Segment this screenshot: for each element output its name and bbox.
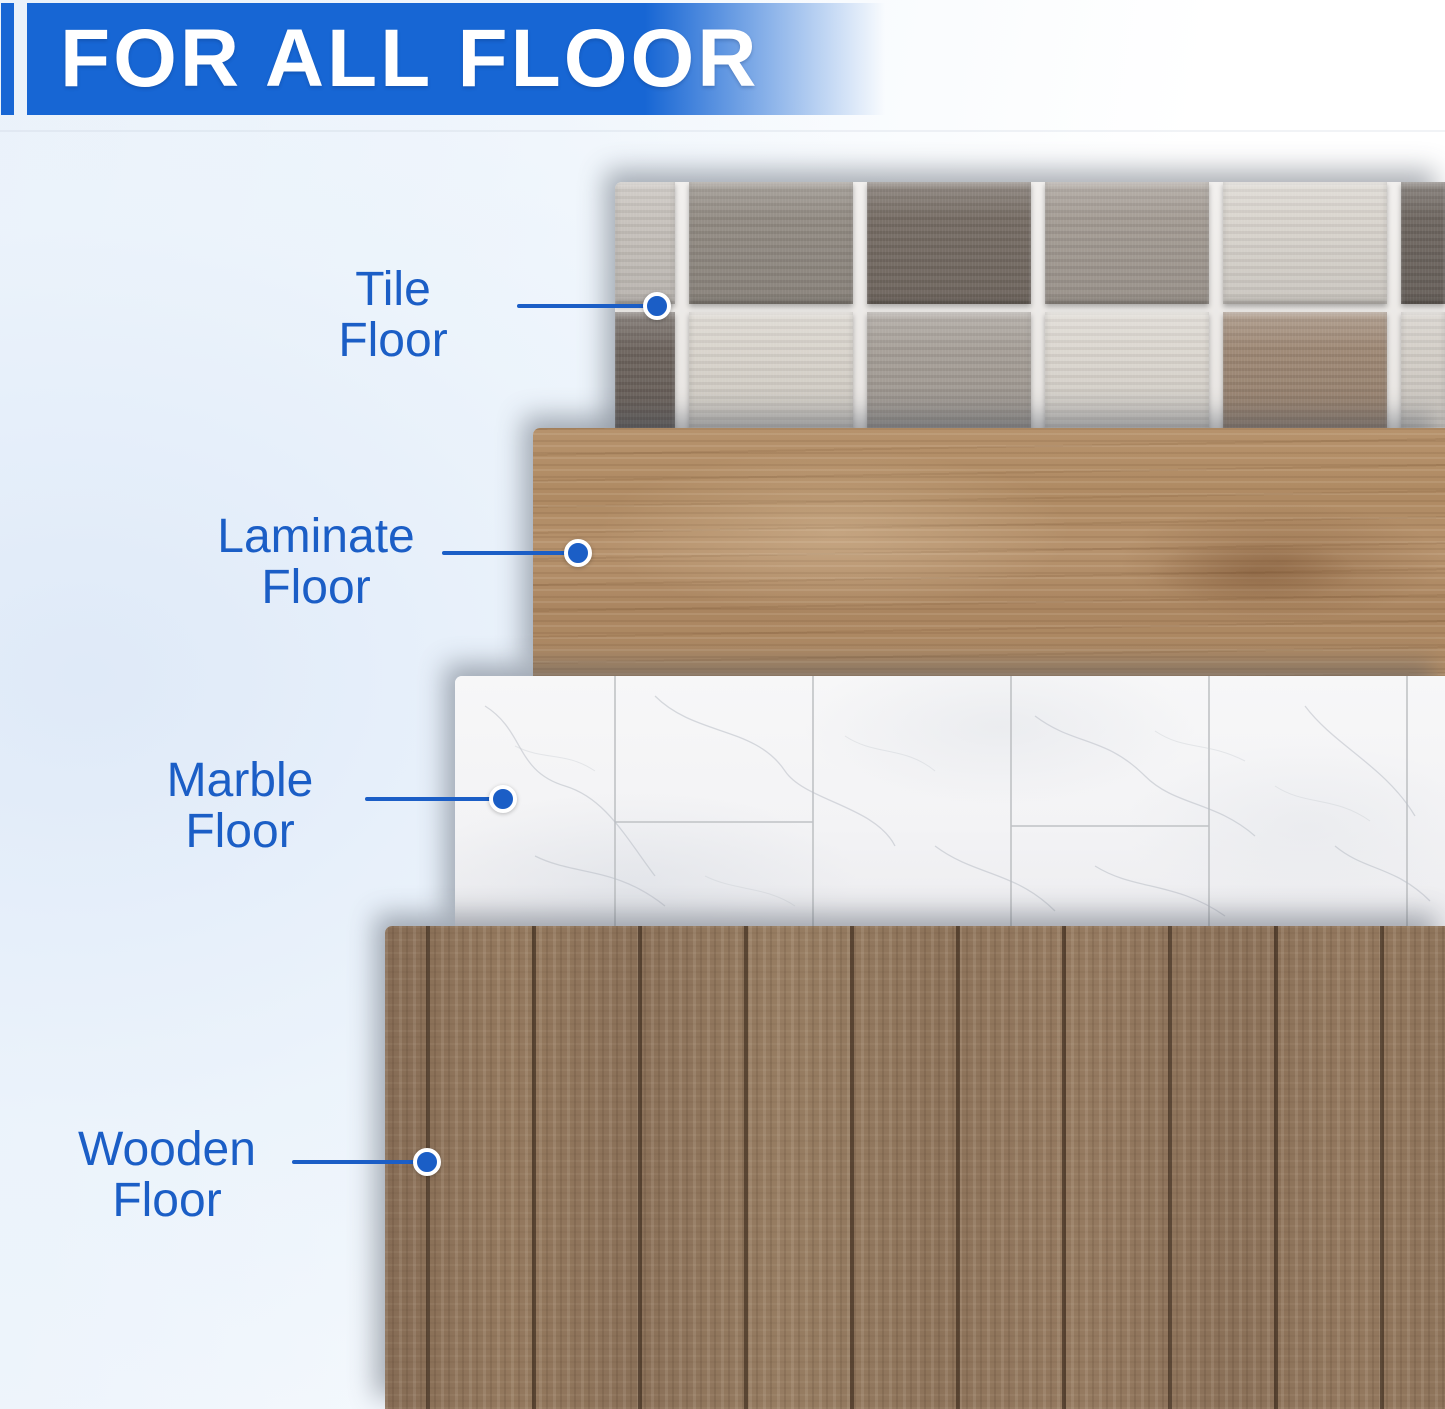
product-infographic: FOR ALL FLOOR (0, 0, 1445, 1409)
tile-floor-label-line2: Floor (233, 315, 553, 366)
marble-floor-label-line1: Marble (80, 755, 400, 806)
tile-cell (615, 182, 675, 304)
tile-cell (1223, 312, 1387, 440)
tile-cell (615, 312, 675, 440)
wooden-floor-callout-dot (413, 1148, 441, 1176)
laminate-floor-label-line2: Floor (156, 562, 476, 613)
tile-floor-label: Tile Floor (233, 264, 553, 366)
tile-cell (1045, 182, 1209, 304)
wooden-floor-label: Wooden Floor (7, 1124, 327, 1226)
marble-floor-leader-line (365, 797, 503, 801)
laminate-floor-sample (533, 428, 1445, 676)
header-edge-stripe (1, 3, 14, 115)
marble-floor-sample (455, 676, 1445, 928)
marble-floor-label: Marble Floor (80, 755, 400, 857)
wooden-floor-label-line1: Wooden (7, 1124, 327, 1175)
tile-floor-callout-dot (643, 292, 671, 320)
tile-cell (1045, 312, 1209, 440)
tile-cell (1401, 182, 1445, 304)
tile-floor-sample (615, 182, 1445, 440)
laminate-floor-leader-line (442, 551, 578, 555)
page-title: FOR ALL FLOOR (27, 18, 759, 100)
tile-cell (867, 312, 1031, 440)
tile-cell (867, 182, 1031, 304)
marble-veining (455, 676, 1445, 928)
wooden-floor-leader-line (292, 1160, 427, 1164)
header-banner: FOR ALL FLOOR (27, 3, 885, 115)
tile-floor-leader-line (517, 304, 657, 308)
header-shadow-line (0, 130, 1445, 132)
laminate-floor-label: Laminate Floor (156, 511, 476, 613)
marble-floor-label-line2: Floor (80, 806, 400, 857)
laminate-floor-label-line1: Laminate (156, 511, 476, 562)
tile-floor-label-line1: Tile (233, 264, 553, 315)
wooden-floor-label-line2: Floor (7, 1175, 327, 1226)
tile-cell (689, 182, 853, 304)
marble-floor-callout-dot (489, 785, 517, 813)
laminate-floor-callout-dot (564, 539, 592, 567)
tile-cell (1401, 312, 1445, 440)
wooden-floor-sample (385, 926, 1445, 1409)
tile-cell (689, 312, 853, 440)
tile-cell (1223, 182, 1387, 304)
